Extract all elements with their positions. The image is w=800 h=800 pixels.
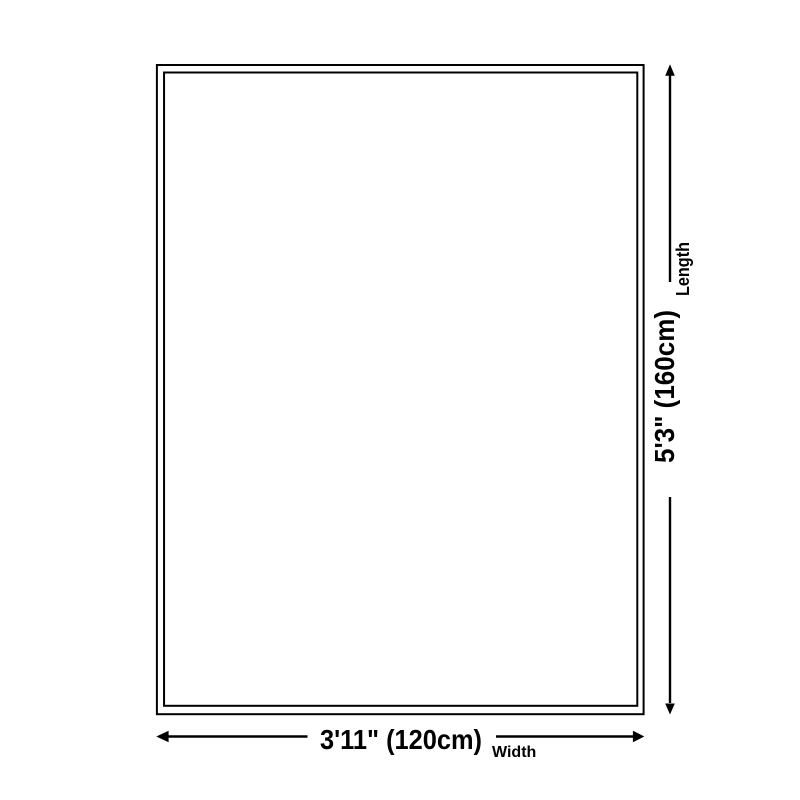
- svg-text:Length: Length: [673, 242, 693, 296]
- svg-text:5'3" (160cm): 5'3" (160cm): [649, 310, 680, 463]
- svg-text:Width: Width: [492, 744, 536, 761]
- svg-text:3'11" (120cm): 3'11" (120cm): [320, 724, 482, 755]
